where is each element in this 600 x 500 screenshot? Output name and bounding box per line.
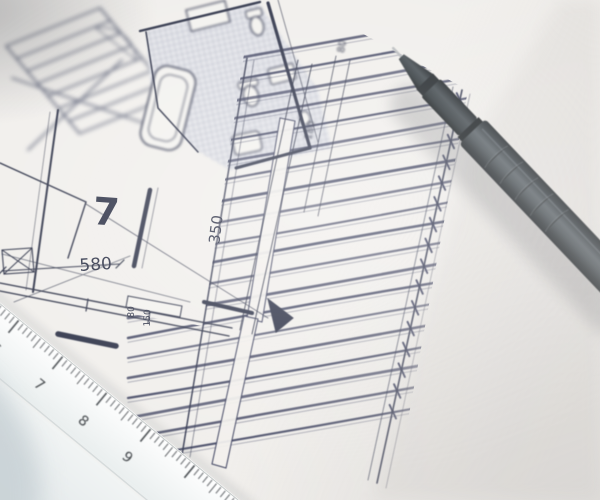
bathroom bbox=[138, 0, 332, 170]
stair-break-cross bbox=[12, 60, 158, 150]
dim-80-door-label: 80 bbox=[127, 306, 137, 318]
interior-wall-stub bbox=[134, 190, 150, 266]
floor-plan-drawing: 7 580 350 80 150 80 180 bbox=[0, 0, 600, 500]
dim-80-top-label: 80 bbox=[336, 39, 349, 53]
dim-150-door-label: 150 bbox=[143, 309, 154, 327]
door-jamb bbox=[86, 299, 88, 311]
ruler: 6789 bbox=[0, 191, 340, 500]
door-wedge bbox=[268, 299, 293, 332]
wall-stub-bold bbox=[58, 334, 116, 346]
room-wall bbox=[0, 163, 86, 258]
photo-scene: 7 580 350 80 150 80 180 bbox=[0, 0, 600, 500]
dim-350-label: 350 bbox=[205, 214, 226, 245]
stair-stringer bbox=[6, 46, 80, 134]
dim-580-label: 580 bbox=[79, 254, 113, 276]
room-number-label: 7 bbox=[91, 189, 120, 235]
